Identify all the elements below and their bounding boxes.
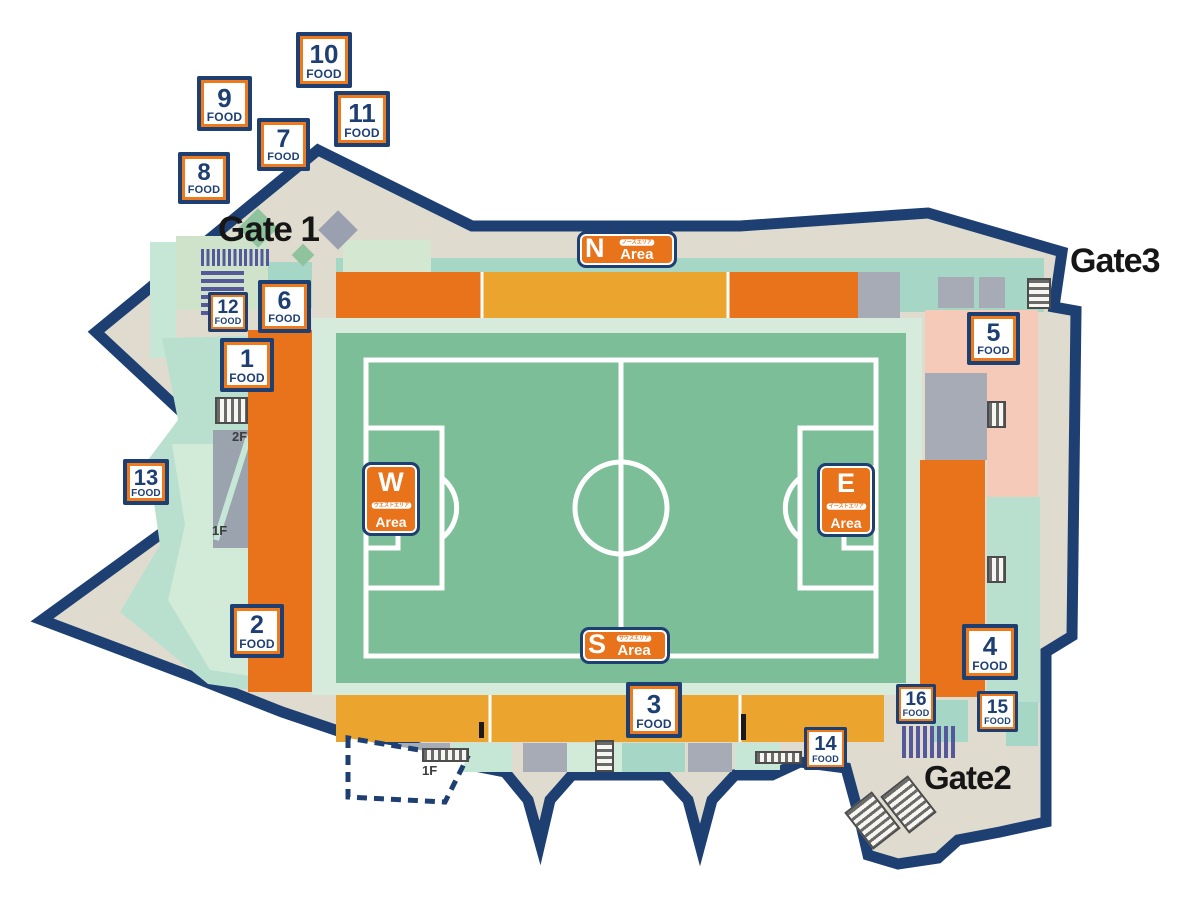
turnstile-icon-gate1 [201,249,269,266]
food-number: 7 [264,125,303,152]
gate1-label: Gate 1 [218,212,319,247]
gate3-label: Gate3 [1070,244,1160,278]
food-marker-6[interactable]: 6FOOD [258,280,311,333]
food-label: FOOD [969,660,1011,673]
food-label: FOOD [982,717,1013,727]
food-marker-frame: 10FOOD [300,36,348,84]
stairs-icon-south-west [422,748,469,762]
pink-block-column [987,374,1038,497]
food-marker-frame: 1FOOD [224,342,270,388]
food-number: 11 [341,98,383,127]
food-marker-7[interactable]: 7FOOD [257,118,310,171]
food-marker-3[interactable]: 3FOOD [626,682,682,738]
area-word: Area [620,247,653,262]
food-number: 13 [130,466,162,489]
food-marker-10[interactable]: 10FOOD [296,32,352,88]
food-marker-11[interactable]: 11FOOD [334,91,390,147]
food-label: FOOD [213,317,243,327]
food-number: 9 [204,83,245,111]
food-number: 4 [969,631,1011,660]
food-label: FOOD [341,127,383,140]
food-marker-15[interactable]: 15FOOD [977,691,1018,732]
food-marker-frame: 12FOOD [211,295,245,329]
food-marker-1[interactable]: 1FOOD [220,338,274,392]
food-label: FOOD [185,185,223,197]
stairs-icon-south [595,740,614,772]
food-marker-14[interactable]: 14FOOD [804,727,847,770]
food-marker-16[interactable]: 16FOOD [896,684,936,724]
area-badge-east[interactable]: E イーストエリア Area [817,463,875,537]
food-number: 3 [633,689,675,718]
south-stand [336,695,884,742]
area-badge-west[interactable]: W ウエストエリア Area [362,462,420,536]
food-marker-4[interactable]: 4FOOD [962,624,1018,680]
food-marker-5[interactable]: 5FOOD [967,312,1020,365]
food-marker-13[interactable]: 13FOOD [123,459,169,505]
stairs-icon-east-upper [987,401,1006,428]
food-marker-frame: 7FOOD [261,122,306,167]
food-label: FOOD [974,346,1013,358]
area-badge-north[interactable]: N ノースエリア Area [577,231,677,268]
stadium-map: Gate 1 Gate3 Gate2 N ノースエリア Area S サウスエリ… [0,0,1200,900]
area-letter: S [588,631,606,658]
floor-label-1f-annex: 1F [422,764,437,777]
food-number: 14 [809,732,842,755]
gray-block-east [925,373,987,460]
food-number: 8 [185,159,223,185]
food-marker-frame: 2FOOD [234,608,280,654]
gate2-label: Gate2 [924,761,1011,794]
food-label: FOOD [264,152,303,164]
food-number: 12 [213,297,243,317]
area-word: Area [375,515,406,529]
food-number: 2 [237,611,277,638]
area-letter: E [837,470,855,497]
food-label: FOOD [237,638,277,651]
area-kana: ウエストエリア [371,502,411,508]
food-number: 5 [974,319,1013,346]
food-label: FOOD [265,314,304,326]
food-number: 1 [227,345,267,372]
food-label: FOOD [303,68,345,81]
area-letter: W [378,469,403,496]
food-number: 16 [901,689,931,709]
food-label: FOOD [130,489,162,500]
area-kana: イーストエリア [826,503,865,509]
food-marker-12[interactable]: 12FOOD [208,292,248,332]
food-marker-frame: 3FOOD [630,686,678,734]
area-kana: サウスエリア [617,635,652,641]
food-marker-frame: 16FOOD [899,687,933,721]
food-number: 10 [303,39,345,68]
food-marker-frame: 5FOOD [971,316,1016,361]
food-marker-frame: 15FOOD [980,694,1015,729]
food-number: 15 [982,696,1013,717]
stairs-icon-east-lower [987,556,1006,583]
food-label: FOOD [633,718,675,731]
food-marker-frame: 11FOOD [338,95,386,143]
food-marker-frame: 6FOOD [262,284,307,329]
area-word: Area [830,516,861,530]
food-marker-frame: 14FOOD [807,730,844,767]
floor-label-1f: 1F [212,524,227,537]
food-marker-9[interactable]: 9FOOD [197,76,252,131]
food-label: FOOD [227,372,267,385]
turnstile-icon-gate2 [902,726,955,758]
food-marker-frame: 8FOOD [182,156,226,200]
food-marker-frame: 9FOOD [201,80,248,127]
food-marker-frame: 4FOOD [966,628,1014,676]
area-letter: N [585,235,605,262]
food-label: FOOD [809,755,842,765]
food-marker-8[interactable]: 8FOOD [178,152,230,204]
stairs-icon-gate3 [1027,278,1051,309]
stairs-icon-south-east [755,751,802,764]
food-label: FOOD [901,709,931,719]
stairs-icon-west [215,397,248,424]
food-number: 6 [265,287,304,314]
area-word: Area [617,643,650,658]
floor-label-2f: 2F [232,430,247,443]
area-kana: ノースエリア [620,239,654,245]
area-badge-south[interactable]: S サウスエリア Area [580,627,670,664]
food-marker-2[interactable]: 2FOOD [230,604,284,658]
food-label: FOOD [204,111,245,124]
food-marker-frame: 13FOOD [127,463,165,501]
north-stand [336,272,900,318]
